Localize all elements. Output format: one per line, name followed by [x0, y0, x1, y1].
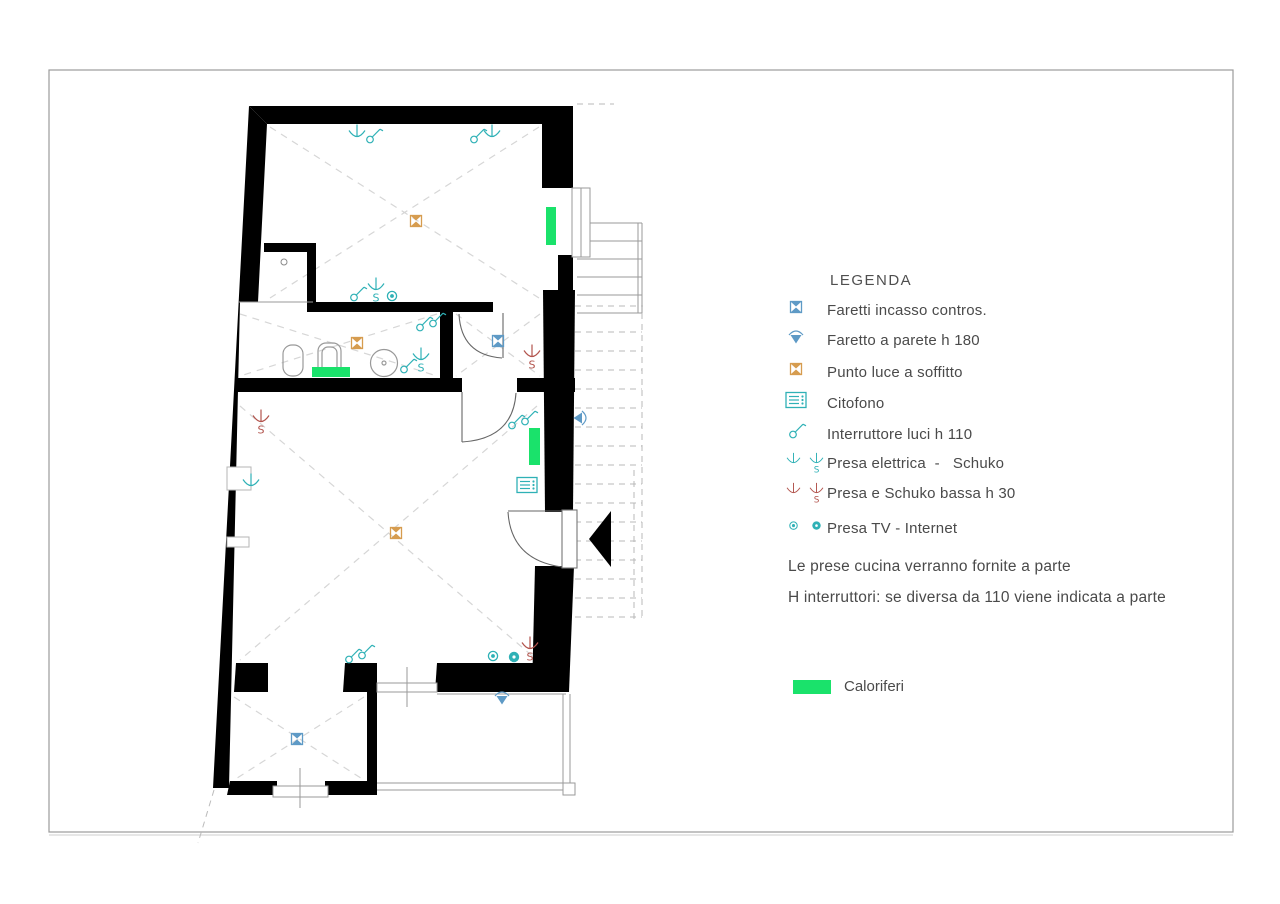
legend-item-label: Faretto a parete h 180 — [827, 332, 980, 349]
legend-item: Interruttore luci h 110 — [783, 421, 972, 447]
caloriferi-item: Caloriferi — [793, 678, 904, 695]
presa-tv-icon — [783, 513, 804, 543]
legend-item: Citofono — [783, 390, 884, 416]
legend: LEGENDA Faretti incasso contros.Faretto … — [0, 0, 1280, 904]
legend-item: Faretti incasso contros. — [783, 297, 987, 323]
legend-item-label: Presa elettrica - Schuko — [827, 455, 1004, 472]
legend-item-label: Faretti incasso contros. — [827, 302, 987, 319]
interruttore-icon — [783, 419, 809, 449]
schuko-bassa-icon — [806, 478, 827, 508]
presa-s-icon — [806, 448, 827, 478]
note-switch-height: H interruttori: se diversa da 110 viene … — [788, 589, 1166, 607]
presa-icon — [783, 448, 804, 478]
legend-item: Punto luce a soffitto — [783, 359, 963, 385]
legend-item-label: Punto luce a soffitto — [827, 364, 963, 381]
legend-item: Faretto a parete h 180 — [783, 327, 980, 353]
floor-plan-page: S — [0, 0, 1280, 904]
presa-bassa-icon — [783, 478, 804, 508]
faretto-parete-icon — [783, 325, 809, 355]
punto-luce-icon — [783, 357, 809, 387]
note-kitchen: Le prese cucina verranno fornite a parte — [788, 558, 1071, 576]
legend-item-label: Citofono — [827, 395, 884, 412]
legend-item: Presa e Schuko bassa h 30 — [783, 480, 1015, 506]
legend-item-label: Presa TV - Internet — [827, 520, 957, 537]
citofono-icon — [783, 388, 809, 418]
presa-internet-icon — [806, 513, 827, 543]
caloriferi-label: Caloriferi — [844, 678, 904, 695]
faretti-incasso-icon — [783, 295, 809, 325]
legend-item-label: Interruttore luci h 110 — [827, 426, 972, 443]
legend-item-label: Presa e Schuko bassa h 30 — [827, 485, 1015, 502]
radiator-swatch — [793, 680, 831, 694]
legend-item: Presa TV - Internet — [783, 515, 957, 541]
legend-item: Presa elettrica - Schuko — [783, 450, 1004, 476]
legend-title: LEGENDA — [830, 272, 912, 289]
